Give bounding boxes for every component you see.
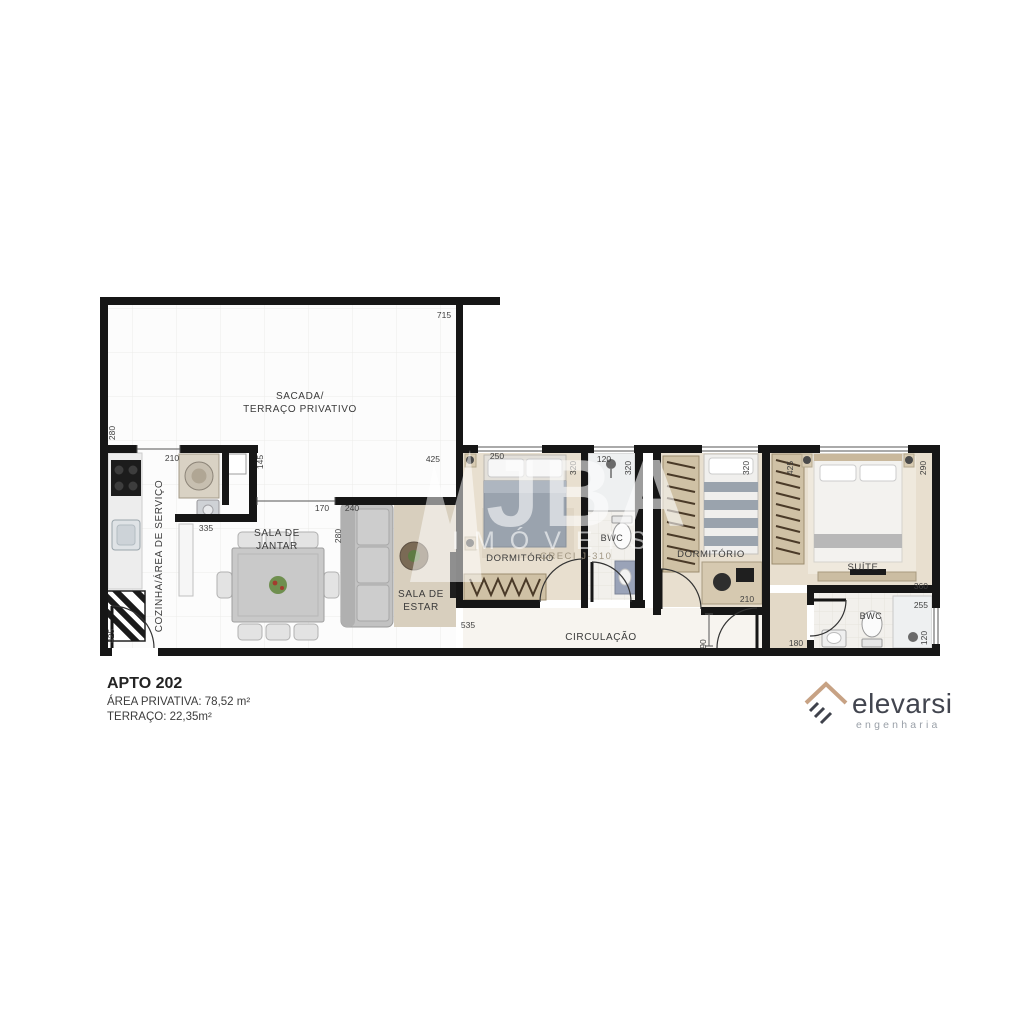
pillow [820, 465, 856, 481]
burner [115, 482, 124, 491]
tank-basin [203, 505, 213, 515]
basin-1 [619, 569, 631, 585]
toilet-tank-2 [862, 639, 882, 647]
dim-suite-width: 290 [918, 461, 928, 475]
dining-chair [294, 624, 318, 640]
apartment-info: APTO 202 ÁREA PRIVATIVA: 78,52 m² TERRAÇ… [107, 675, 250, 723]
wall-top-bedrooms [456, 445, 478, 453]
dim-bathroom2-width: 255 [914, 600, 928, 610]
wall-bedroom2-right [762, 453, 770, 656]
sink-basin [117, 525, 135, 545]
wall-bathroom1-bottom [630, 600, 645, 608]
desk-chair [713, 573, 731, 591]
apartment-terrace-area: TERRAÇO: 22,35m² [107, 711, 212, 723]
dim-desk: 210 [740, 594, 754, 604]
headboard [814, 454, 902, 461]
window-suite [820, 445, 908, 453]
room-label-terrace-2: TERRAÇO PRIVATIVO [243, 404, 357, 415]
brand-name: elevarsi [852, 688, 952, 719]
dining-chair [324, 572, 339, 598]
room-label-bedroom2: DORMITÓRIO [677, 549, 745, 560]
dim-laundry: 210 [165, 453, 179, 463]
room-label-bathroom2: BWC [860, 611, 883, 621]
room-label-living-2: ESTAR [403, 602, 439, 613]
desk-items [736, 568, 754, 582]
duvet-stripe [704, 482, 758, 492]
floor-plan: SACADA/ TERRAÇO PRIVATIVO COZINHA/ÁREA D… [0, 0, 1024, 1024]
lamp-icon [905, 456, 913, 464]
floor-plan-page: SACADA/ TERRAÇO PRIVATIVO COZINHA/ÁREA D… [0, 0, 1024, 1024]
wall-bottom [100, 648, 112, 656]
dining-chair [238, 624, 262, 640]
dim-hall-door: 90 [698, 639, 708, 649]
wall-left [100, 297, 108, 656]
sofa-cushion [357, 547, 389, 583]
pantry-shelf [228, 454, 246, 474]
kitchen-island [179, 524, 193, 596]
burner [129, 482, 138, 491]
watermark-license: CRECI J-310 [540, 551, 612, 562]
dim-pantry: 145 [255, 455, 265, 469]
table-plant [269, 576, 287, 594]
dim-living-top: 425 [426, 454, 440, 464]
window-bedroom2 [702, 445, 758, 453]
lamp-icon [803, 456, 811, 464]
room-label-dining-1: SALA DE [254, 528, 300, 539]
room-label-dining-2: JANTAR [256, 541, 298, 552]
dining-chair [217, 572, 232, 598]
dim-living-wall: 240 [345, 503, 359, 513]
shower-head-icon [908, 632, 918, 642]
room-label-living-1: SALA DE [398, 589, 444, 600]
window-bathroom2 [932, 608, 940, 644]
dining-chair [266, 624, 290, 640]
dim-terrace-width: 715 [437, 310, 451, 320]
sofa-cushion [357, 585, 389, 621]
wall-bedroom1-bottom [456, 600, 540, 608]
dim-tv-wall: 360 [914, 581, 928, 591]
room-label-suite: SUÍTE [848, 562, 879, 573]
wall-laundry-bottom [175, 514, 257, 522]
cooktop [111, 460, 141, 496]
duvet-stripe [704, 500, 758, 510]
burner [115, 466, 124, 475]
wall-terrace-right [456, 297, 463, 453]
room-label-terrace-1: SACADA/ [276, 391, 324, 402]
sofa-cushion [357, 509, 389, 545]
dim-bathroom2-run: 180 [789, 638, 803, 648]
wall-top-bedrooms [908, 445, 940, 453]
apartment-name: APTO 202 [107, 675, 182, 692]
dim-bathroom2-depth: 120 [919, 631, 929, 645]
wall-pantry-divider [222, 445, 229, 505]
brand-logo: elevarsi engenharia [806, 684, 952, 731]
dim-passage: 170 [315, 503, 329, 513]
duvet-stripe [704, 536, 758, 546]
duvet-stripe [704, 518, 758, 528]
dim-entry-door: 425 [106, 629, 116, 643]
dim-living-depth: 280 [333, 529, 343, 543]
dim-hall-run: 535 [461, 620, 475, 630]
room-label-kitchen: COZINHA/ÁREA DE SERVIÇO [152, 480, 165, 633]
plant-flower [273, 581, 278, 586]
wall-top-bedrooms [758, 445, 820, 453]
wall-terrace-top [100, 297, 500, 305]
washer-drum-inner [192, 469, 207, 484]
burner [129, 466, 138, 475]
dim-terrace-side: 280 [107, 426, 117, 440]
dim-suite-side: 425 [785, 461, 795, 475]
dim-bedroom2-depth: 320 [741, 461, 751, 475]
apartment-private-area: ÁREA PRIVATIVA: 78,52 m² [107, 695, 250, 708]
plant-flower [280, 586, 284, 590]
basin-2 [827, 633, 841, 644]
dim-kitchen-run: 335 [199, 523, 213, 533]
roof-icon [806, 684, 846, 723]
duvet-band [814, 534, 902, 548]
sofa-back [341, 503, 355, 627]
wall-laundry-top [108, 445, 137, 453]
pillow [860, 465, 896, 481]
wall-bottom [158, 648, 940, 656]
room-label-hallway: CIRCULAÇÃO [565, 630, 637, 643]
brand-tagline: engenharia [856, 719, 941, 731]
wall-laundry-top [180, 445, 258, 453]
wall-bathroom2-left [807, 640, 814, 650]
